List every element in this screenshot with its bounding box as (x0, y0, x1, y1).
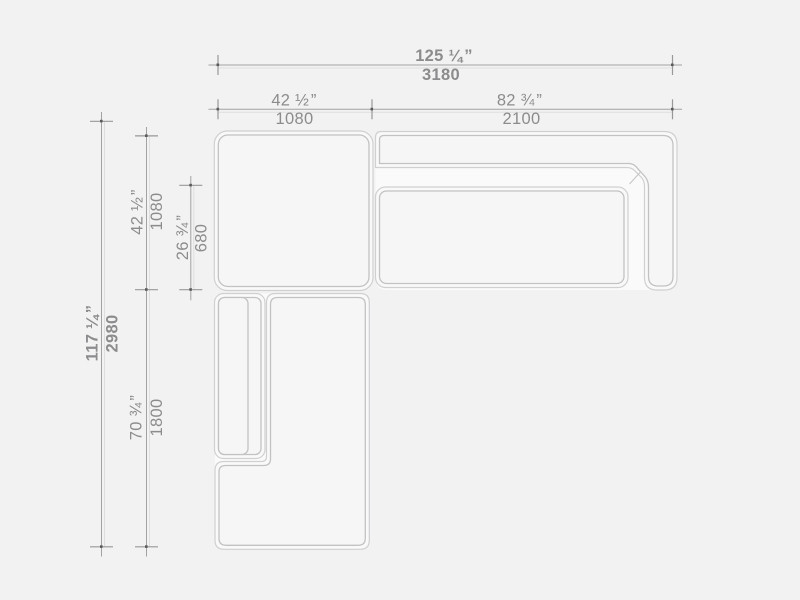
svg-text:82 ¾ ”: 82 ¾ ” (497, 92, 542, 110)
svg-text:1080: 1080 (276, 110, 314, 128)
svg-text:26 ¾ ”: 26 ¾ ” (174, 215, 192, 260)
svg-text:42 ½ ”: 42 ½ ” (271, 92, 316, 110)
svg-text:2100: 2100 (503, 110, 541, 128)
svg-text:3180: 3180 (422, 66, 460, 84)
svg-text:125 ¼ ”: 125 ¼ ” (415, 47, 473, 65)
svg-text:70 ¾ ”: 70 ¾ ” (128, 395, 146, 440)
svg-text:117 ¼ ”: 117 ¼ ” (83, 305, 101, 362)
svg-text:2980: 2980 (104, 315, 122, 353)
svg-text:1080: 1080 (148, 193, 166, 231)
svg-text:680: 680 (193, 224, 211, 252)
svg-text:42 ½ ”: 42 ½ ” (128, 189, 146, 234)
svg-text:1800: 1800 (148, 399, 166, 437)
